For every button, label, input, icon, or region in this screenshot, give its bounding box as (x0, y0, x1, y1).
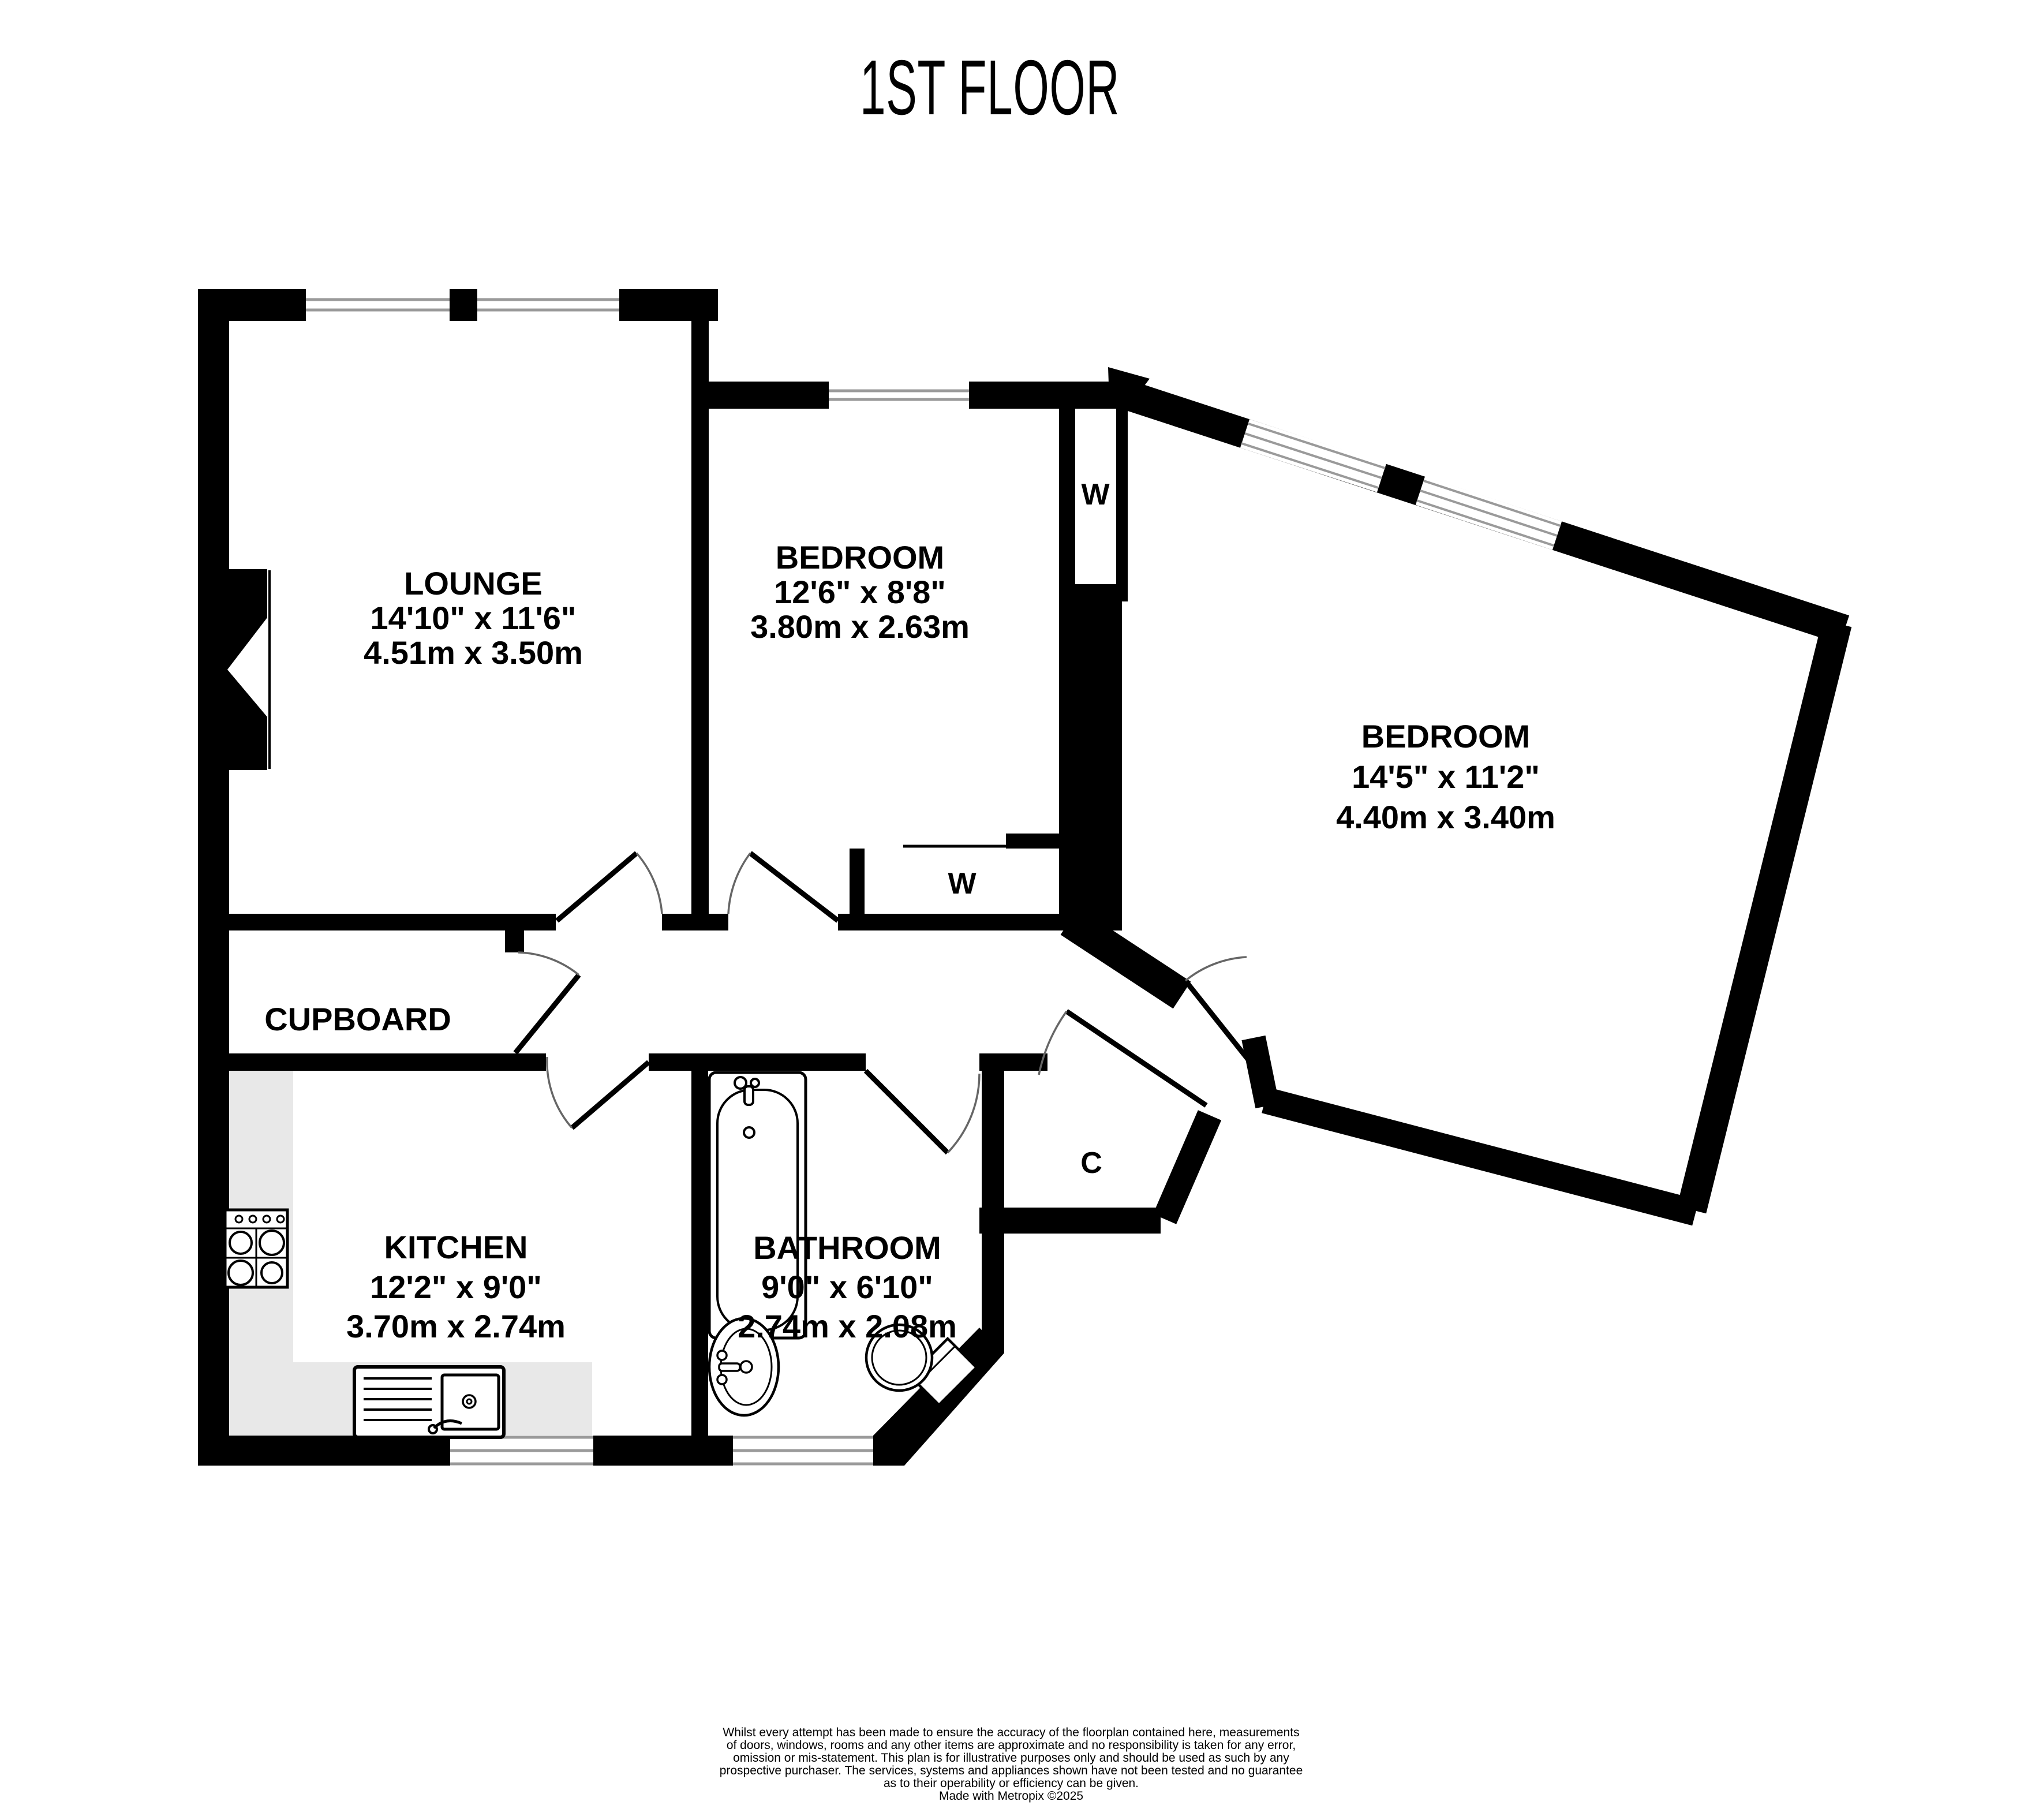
lounge-name: LOUNGE (404, 565, 543, 601)
bedroom2-door (1185, 957, 1251, 1063)
room-bathroom-label: BATHROOM 9'0" x 6'10" 2.74m x 2.08m (738, 1229, 957, 1344)
room-bedroom2-label: BEDROOM 14'5" x 11'2" 4.40m x 3.40m (1336, 718, 1555, 835)
bedroom1-imperial: 12'6" x 8'8" (774, 574, 946, 610)
outer-left-wall (198, 289, 229, 1466)
bedroom2-window-1 (1241, 424, 1385, 488)
bedroom2-right-wall (1692, 623, 1837, 1210)
bottom-wall-mid (593, 1436, 733, 1466)
lounge-top-wall (198, 289, 718, 321)
bedroom2-name: BEDROOM (1361, 718, 1530, 754)
wardrobe2-label: W (948, 867, 977, 900)
closet-c-right-wall (1165, 1115, 1210, 1219)
closet-c-bottom-wall (979, 1208, 1161, 1234)
cupboard-label: CUPBOARD (264, 1001, 451, 1037)
closet-c-door (1039, 1011, 1206, 1105)
bedroom2-bottom-wall (1265, 1100, 1696, 1213)
bathroom-imperial: 9'0" x 6'10" (761, 1269, 933, 1305)
lounge-window-1 (306, 289, 450, 321)
core-wall-mass (1075, 584, 1122, 930)
disclaimer-line-5: as to their operability or efficiency ca… (884, 1777, 1139, 1790)
wardrobe1-label: W (1081, 478, 1110, 511)
bedroom2-window-2 (1417, 481, 1561, 545)
bathroom-window (733, 1436, 873, 1466)
kitchen-imperial: 12'2" x 9'0" (370, 1269, 542, 1305)
bedroom2-door-jamb (1254, 1038, 1267, 1106)
kitchen-top-wall (198, 1053, 546, 1071)
bedroom1-window (829, 382, 969, 409)
bedroom1-door (728, 853, 838, 921)
room-bedroom1-label: BEDROOM 12'6" x 8'8" 3.80m x 2.63m (750, 539, 970, 645)
kitchen-door (547, 1057, 649, 1128)
room-lounge-label: LOUNGE 14'10" x 11'6" 4.51m x 3.50m (364, 565, 583, 671)
bedroom2-metric: 4.40m x 3.40m (1336, 799, 1555, 835)
closet-c-label: C (1080, 1146, 1102, 1180)
cupboard-door (515, 952, 579, 1053)
disclaimer-line-2: of doors, windows, rooms and any other i… (727, 1739, 1296, 1752)
bathroom-door (866, 1071, 979, 1153)
hall-angled-wall (1069, 921, 1182, 995)
metropix-credit: Made with Metropix ©2025 (939, 1789, 1083, 1803)
kitchen-sink-icon (354, 1367, 504, 1437)
kitchen-bottom-wall-left (198, 1436, 450, 1466)
lounge-bedroom-divider-wall (691, 289, 709, 930)
lounge-imperial: 14'10" x 11'6" (371, 600, 577, 636)
lounge-door (557, 853, 662, 921)
kitchen-window (450, 1436, 593, 1466)
wardrobe2-left-wall (850, 849, 865, 914)
bathroom-name: BATHROOM (753, 1229, 941, 1266)
page-title: 1ST FLOOR (860, 44, 1120, 131)
floorplan-page: 1ST FLOOR (0, 0, 2024, 1820)
bathroom-top-wall-right (979, 1053, 1047, 1071)
fireplace-icon (224, 569, 270, 770)
disclaimer: Whilst every attempt has been made to en… (720, 1726, 1303, 1803)
hob-icon (225, 1210, 287, 1287)
disclaimer-line-1: Whilst every attempt has been made to en… (723, 1726, 1299, 1739)
lounge-window-2 (477, 289, 619, 321)
bathroom-left-wall (691, 1071, 708, 1436)
room-kitchen-label: KITCHEN 12'2" x 9'0" 3.70m x 2.74m (346, 1229, 566, 1344)
kitchen-name: KITCHEN (384, 1229, 528, 1265)
hall-top-wall-left (229, 914, 556, 930)
disclaimer-line-4: prospective purchaser. The services, sys… (720, 1764, 1303, 1777)
disclaimer-line-3: omission or mis-statement. This plan is … (733, 1751, 1289, 1765)
cupboard-divider-stub (505, 930, 524, 952)
bathroom-metric: 2.74m x 2.08m (738, 1308, 957, 1344)
hall-top-wall-right (838, 914, 1066, 930)
room-labels: LOUNGE 14'10" x 11'6" 4.51m x 3.50m BEDR… (264, 478, 1555, 1344)
hall-top-wall-mid (662, 914, 728, 930)
floorplan-svg: 1ST FLOOR (0, 0, 2024, 1820)
bathroom-top-wall-left (649, 1053, 866, 1071)
bedroom2-imperial: 14'5" x 11'2" (1352, 758, 1540, 795)
kitchen-metric: 3.70m x 2.74m (346, 1308, 566, 1344)
bedroom1-name: BEDROOM (776, 539, 944, 575)
bedroom1-right-wall (1059, 382, 1075, 930)
lounge-metric: 4.51m x 3.50m (364, 634, 583, 671)
bedroom1-metric: 3.80m x 2.63m (750, 608, 970, 645)
